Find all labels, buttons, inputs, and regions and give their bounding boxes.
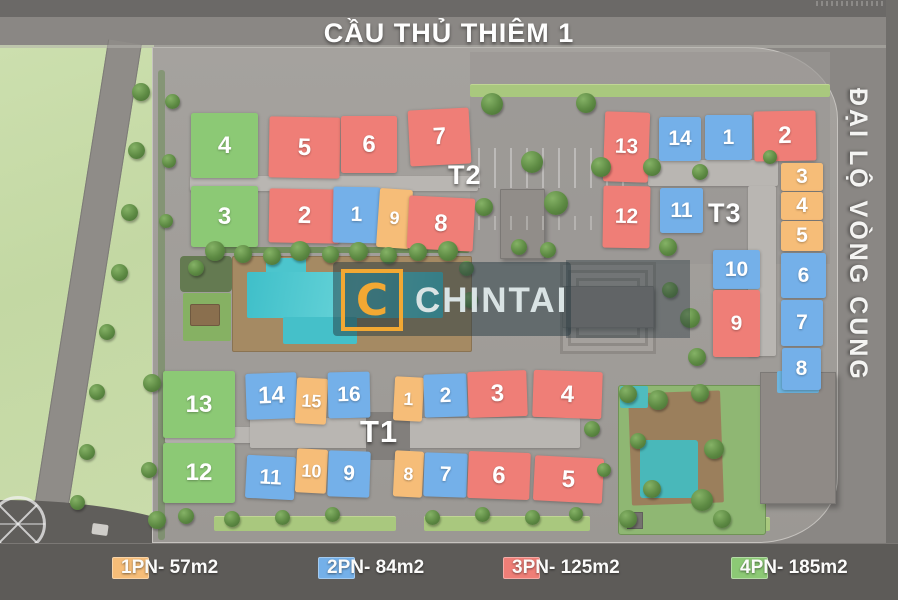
legend-label: 3PN- 125m2 bbox=[512, 557, 620, 579]
site-plan-canvas: 456732198T21314121211345678109T313141516… bbox=[0, 0, 898, 600]
legend-label: 4PN- 185m2 bbox=[740, 557, 848, 579]
legend: 1PN- 57m22PN- 84m23PN- 125m24PN- 185m2 bbox=[0, 0, 898, 600]
legend-label: 1PN- 57m2 bbox=[121, 557, 218, 579]
legend-label: 2PN- 84m2 bbox=[327, 557, 424, 579]
